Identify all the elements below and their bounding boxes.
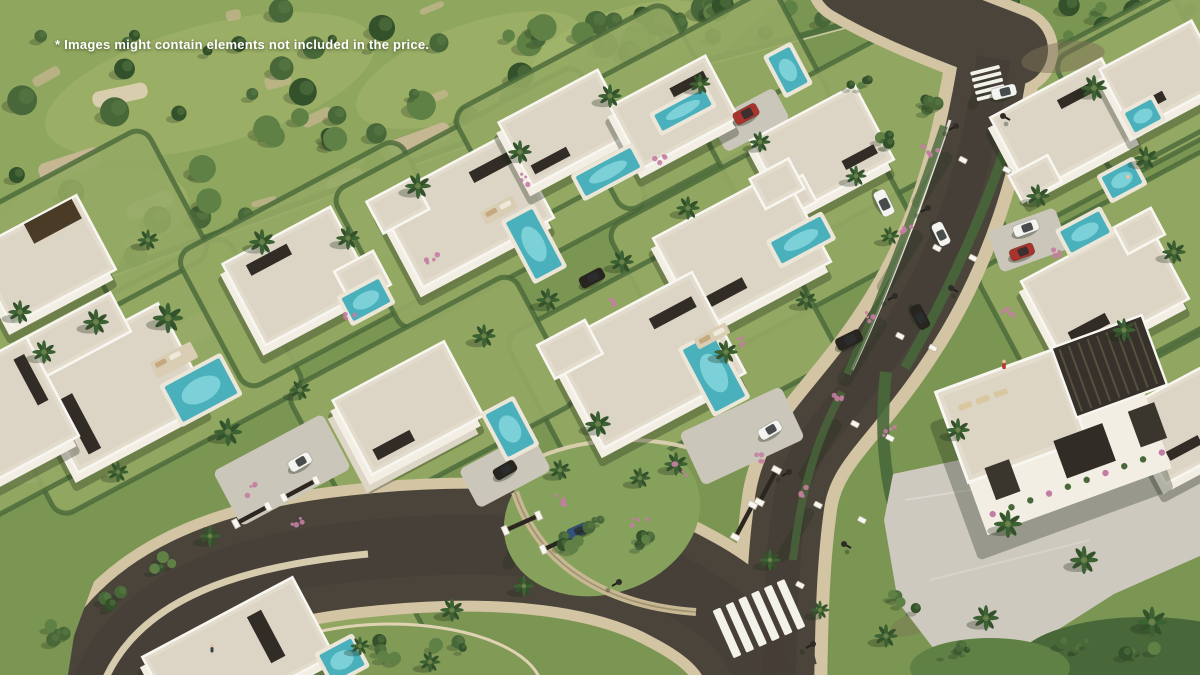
tree-highlight xyxy=(1100,3,1106,9)
flower-cluster xyxy=(832,393,837,398)
palm-trunk-top xyxy=(1007,523,1009,525)
palm-trunk-top xyxy=(1037,195,1039,197)
palm-trunk-top xyxy=(483,335,485,337)
palm-trunk-top xyxy=(227,431,229,433)
palm-trunk-top xyxy=(687,207,689,209)
flower-cluster xyxy=(524,176,527,179)
person-body xyxy=(211,647,214,653)
tree-highlight xyxy=(15,169,23,177)
flower-cluster xyxy=(564,503,567,506)
flower-cluster xyxy=(1051,247,1056,252)
tree-highlight xyxy=(177,107,185,115)
tree-highlight xyxy=(206,191,219,204)
light-shadow xyxy=(845,550,850,555)
tree-shadow xyxy=(959,654,965,657)
palm-trunk-top xyxy=(417,185,419,187)
palm-trunk-top xyxy=(855,175,857,177)
tree-highlight xyxy=(278,1,291,14)
tree-shadow xyxy=(936,658,944,662)
flower-cluster xyxy=(662,155,667,160)
tree-highlight xyxy=(507,31,514,38)
palm-trunk-top xyxy=(43,351,45,353)
palm-trunk-top xyxy=(725,351,727,353)
flower-cluster xyxy=(520,173,523,176)
tree-highlight xyxy=(599,516,603,520)
person-head xyxy=(1002,360,1006,364)
light-head xyxy=(892,293,898,299)
palm-trunk-top xyxy=(519,151,521,153)
palm-trunk-top xyxy=(523,585,525,587)
light-shadow xyxy=(776,478,781,483)
flower-cluster xyxy=(554,494,557,497)
palm-trunk-top xyxy=(819,609,821,611)
palm-trunk-top xyxy=(1173,251,1175,253)
tree-highlight xyxy=(915,604,920,609)
flower-cluster xyxy=(646,517,650,521)
tree-highlight xyxy=(119,587,126,594)
palm-trunk-top xyxy=(347,237,349,239)
tree-highlight xyxy=(251,89,257,95)
tree-highlight xyxy=(577,536,583,542)
flower-cluster xyxy=(520,178,524,182)
tree-shadow xyxy=(883,598,893,603)
palm-trunk-top xyxy=(209,535,211,537)
flower-cluster xyxy=(631,517,634,520)
flower-cluster xyxy=(926,150,930,154)
tree-highlight xyxy=(1067,31,1073,37)
tree-highlight xyxy=(335,108,345,118)
light-shadow xyxy=(800,650,805,655)
flower-cluster xyxy=(754,453,759,458)
flower-cluster xyxy=(867,319,871,323)
flower-cluster xyxy=(1001,309,1006,314)
tree-highlight xyxy=(378,635,385,642)
tree-highlight xyxy=(935,98,942,105)
tree-highlight xyxy=(899,598,904,603)
palm-trunk-top xyxy=(985,617,987,619)
flower-cluster xyxy=(1056,252,1061,257)
tree-highlight xyxy=(133,31,139,37)
palm-trunk-top xyxy=(805,299,807,301)
light-head xyxy=(810,641,816,647)
light-head xyxy=(786,469,792,475)
tree-highlight xyxy=(382,652,388,658)
tree-highlight xyxy=(110,600,116,606)
flower-cluster xyxy=(291,522,294,525)
tree-highlight xyxy=(413,90,418,95)
flower-cluster xyxy=(299,517,302,520)
palm-trunk-top xyxy=(609,95,611,97)
flower-cluster xyxy=(882,434,885,437)
tree-shadow xyxy=(1067,653,1075,657)
flower-cluster xyxy=(740,341,744,345)
flower-cluster xyxy=(865,311,868,314)
tree-highlight xyxy=(860,83,864,87)
tree-highlight xyxy=(850,81,854,85)
palm-trunk-top xyxy=(759,141,761,143)
palm-trunk-top xyxy=(1093,87,1095,89)
flower-cluster xyxy=(1008,312,1011,315)
tree-highlight xyxy=(434,639,441,646)
flower-cluster xyxy=(883,429,888,434)
palm-trunk-top xyxy=(359,645,361,647)
palm-trunk-top xyxy=(699,83,701,85)
flower-cluster xyxy=(249,485,252,488)
tree-highlight xyxy=(563,532,569,538)
tree-highlight xyxy=(1061,637,1068,644)
flower-cluster xyxy=(935,148,940,153)
tree-highlight xyxy=(960,642,966,648)
flower-cluster xyxy=(561,498,566,503)
palm-trunk-top xyxy=(117,471,119,473)
person-head xyxy=(210,644,213,647)
palm-trunk-top xyxy=(261,241,263,243)
light-head xyxy=(953,123,959,129)
flower-cluster xyxy=(294,522,300,528)
flower-cluster xyxy=(300,520,305,525)
tree-highlight xyxy=(122,61,133,72)
tree-highlight xyxy=(944,651,948,655)
light-shadow xyxy=(943,132,948,137)
palm-trunk-top xyxy=(889,235,891,237)
person-body xyxy=(1002,363,1006,369)
light-shadow xyxy=(952,294,957,299)
flower-cluster xyxy=(737,337,741,341)
light-shadow xyxy=(915,214,920,219)
flower-cluster xyxy=(611,298,615,302)
tree-highlight xyxy=(788,2,796,10)
flower-cluster xyxy=(921,144,926,149)
tree-highlight xyxy=(1075,646,1079,650)
tree-highlight xyxy=(457,636,464,643)
tree-shadow xyxy=(852,90,860,94)
flower-cluster xyxy=(636,518,640,522)
flower-cluster xyxy=(435,252,440,257)
light-shadow xyxy=(882,302,887,307)
tree-highlight xyxy=(379,645,385,651)
tree-highlight xyxy=(1153,643,1160,650)
palm-trunk-top xyxy=(769,559,771,561)
tree-highlight xyxy=(462,645,466,649)
flower-cluster xyxy=(426,261,430,265)
tree-shadow xyxy=(841,89,850,93)
tree-highlight xyxy=(867,76,872,81)
tree-highlight xyxy=(879,133,885,139)
flower-cluster xyxy=(1005,307,1010,312)
palm-trunk-top xyxy=(429,661,431,663)
tree-highlight xyxy=(594,13,606,25)
light-head xyxy=(1000,113,1006,119)
tree-highlight xyxy=(1084,639,1089,644)
tree-highlight xyxy=(300,81,314,95)
tree-highlight xyxy=(279,59,291,71)
tree-highlight xyxy=(379,17,393,31)
flower-cluster xyxy=(630,523,635,528)
price-disclaimer-text: * Images might contain elements not incl… xyxy=(55,37,429,52)
flower-cluster xyxy=(801,494,804,497)
palm-trunk-top xyxy=(299,389,301,391)
flower-cluster xyxy=(685,473,688,476)
flower-cluster xyxy=(252,484,256,488)
flower-cluster xyxy=(681,470,684,473)
tree-highlight xyxy=(39,31,46,38)
tree-highlight xyxy=(62,628,69,635)
light-shadow xyxy=(1004,122,1009,127)
tree-highlight xyxy=(111,100,126,115)
tree-highlight xyxy=(418,94,433,109)
flower-cluster xyxy=(652,156,658,162)
palm-trunk-top xyxy=(95,321,97,323)
flower-cluster xyxy=(432,258,436,262)
palm-trunk-top xyxy=(167,317,170,320)
flower-cluster xyxy=(902,228,907,233)
render-canvas xyxy=(0,0,1200,675)
flower-cluster xyxy=(612,302,617,307)
tree-highlight xyxy=(49,620,55,626)
palm-trunk-top xyxy=(1151,621,1154,624)
tree-highlight xyxy=(298,110,307,119)
tree-highlight xyxy=(580,24,592,36)
palm-trunk-top xyxy=(559,469,561,471)
palm-trunk-top xyxy=(1145,157,1147,159)
palm-trunk-top xyxy=(885,635,887,637)
tree-highlight xyxy=(153,564,158,569)
flower-cluster xyxy=(866,316,869,319)
tree-highlight xyxy=(645,536,650,541)
flower-cluster xyxy=(525,182,530,187)
aerial-villa-render: * Images might contain elements not incl… xyxy=(0,0,1200,675)
light-head xyxy=(948,285,954,291)
tree-highlight xyxy=(19,88,35,104)
tree-highlight xyxy=(570,541,578,549)
tree-highlight xyxy=(332,129,345,142)
tree-highlight xyxy=(161,552,167,558)
tree-highlight xyxy=(437,35,447,45)
palm-trunk-top xyxy=(1083,559,1085,561)
flower-cluster xyxy=(741,337,744,340)
person-on-roof xyxy=(1002,360,1006,369)
flower-cluster xyxy=(759,452,764,457)
tree-highlight xyxy=(374,125,385,136)
palm-trunk-top xyxy=(621,261,623,263)
light-shadow xyxy=(606,588,611,593)
flower-cluster xyxy=(343,316,346,319)
flower-cluster xyxy=(671,461,676,466)
tree-highlight xyxy=(891,591,896,596)
light-head xyxy=(925,205,931,211)
flower-cluster xyxy=(803,485,808,490)
palm-trunk-top xyxy=(957,429,959,431)
palm-trunk-top xyxy=(547,299,549,301)
palm-trunk-top xyxy=(451,609,453,611)
tree-highlight xyxy=(393,653,400,660)
tree-highlight xyxy=(966,647,969,650)
tree-highlight xyxy=(1124,648,1131,655)
light-head xyxy=(841,541,847,547)
flower-cluster xyxy=(245,493,250,498)
palm-trunk-top xyxy=(597,423,599,425)
flower-cluster xyxy=(909,225,913,229)
tree-highlight xyxy=(594,518,597,521)
tree-highlight xyxy=(587,522,594,529)
flower-cluster xyxy=(870,314,876,320)
light-head xyxy=(616,579,622,585)
flower-cluster xyxy=(657,160,662,165)
palm-trunk-top xyxy=(147,239,149,241)
tree-highlight xyxy=(540,17,554,31)
tree-highlight xyxy=(159,564,163,568)
palm-trunk-top xyxy=(639,477,641,479)
tree-highlight xyxy=(888,131,893,136)
tree-highlight xyxy=(171,560,176,565)
tree-highlight xyxy=(928,97,934,103)
tree-highlight xyxy=(264,118,278,132)
person-walking xyxy=(210,644,213,653)
palm-trunk-top xyxy=(1123,329,1125,331)
palm-trunk-top xyxy=(19,311,21,313)
flower-cluster xyxy=(893,425,897,429)
flower-cluster xyxy=(352,313,357,318)
flower-cluster xyxy=(889,427,893,431)
tree-highlight xyxy=(887,138,893,144)
flower-cluster xyxy=(761,460,765,464)
flower-cluster xyxy=(840,395,844,399)
tree-highlight xyxy=(199,158,213,172)
tree-highlight xyxy=(52,634,60,642)
tree-shadow xyxy=(453,652,462,656)
